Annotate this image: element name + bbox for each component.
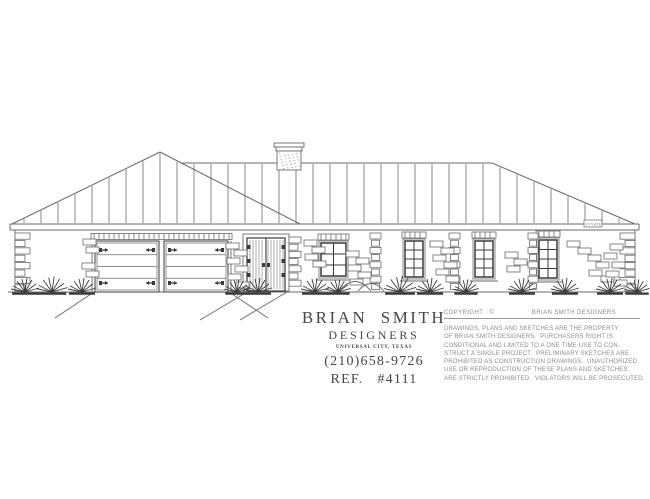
- copyright-owner: BRIAN SMITH DESIGNERS: [532, 310, 616, 316]
- title-block: BRIAN SMITH DESIGNERS UNIVERSAL CITY, TE…: [298, 308, 450, 388]
- copyright-block: COPYRIGHT : © BRIAN SMITH DESIGNERS DRAW…: [444, 310, 640, 383]
- copyright-label: COPYRIGHT : ©: [444, 310, 494, 316]
- firm-phone: (210)658-9726: [298, 354, 450, 370]
- copyright-body: DRAWINGS, PLANS AND SKETCHES ARE THE PRO…: [444, 325, 640, 383]
- copyright-line: CONDITIONAL AND LIMITED TO A ONE TIME US…: [444, 342, 640, 350]
- plate-label-text: 8' PLATE: [586, 222, 602, 226]
- window: [400, 232, 428, 281]
- plate-height-label: 8' PLATE: [584, 220, 602, 227]
- drawing-sheet: 8' PLATE BRIAN SMITH DESIGNERS UNIVERSAL…: [0, 0, 650, 499]
- garage-doors: [91, 234, 232, 293]
- bush: [416, 278, 444, 294]
- fascia-band: [10, 224, 639, 230]
- entry-door: [243, 234, 289, 291]
- copyright-line: ARE STRICTLY PROHIBITED. VIOLATORS WILL …: [444, 375, 640, 383]
- house-front-elevation-drawing: 8' PLATE: [0, 0, 650, 330]
- firm-location: UNIVERSAL CITY, TEXAS: [298, 345, 450, 350]
- copyright-line: OF BRIAN SMITH DESIGNERS. PURCHASERS RIG…: [444, 333, 640, 341]
- firm-name: BRIAN SMITH: [298, 308, 450, 328]
- plan-reference-number: REF. #4111: [298, 372, 450, 388]
- window: [470, 232, 498, 281]
- copyright-line: DRAWINGS, PLANS AND SKETCHES ARE THE PRO…: [444, 325, 640, 333]
- chimney: [274, 143, 304, 170]
- firm-subtitle: DESIGNERS: [298, 328, 450, 343]
- copyright-line: USE OR REPRODUCTION OF THESE PLANS AND S…: [444, 366, 640, 374]
- roof: [10, 152, 639, 230]
- roof-outline: [12, 152, 635, 224]
- bush: [325, 279, 350, 293]
- bush: [37, 277, 68, 294]
- copyright-header: COPYRIGHT : © BRIAN SMITH DESIGNERS: [444, 310, 640, 319]
- copyright-line: PROHIBITED AS CONSTRUCTION DRAWINGS. UNA…: [444, 358, 640, 366]
- copyright-line: STRUCT A SINGLE PROJECT. PRELIMINARY SKE…: [444, 350, 640, 358]
